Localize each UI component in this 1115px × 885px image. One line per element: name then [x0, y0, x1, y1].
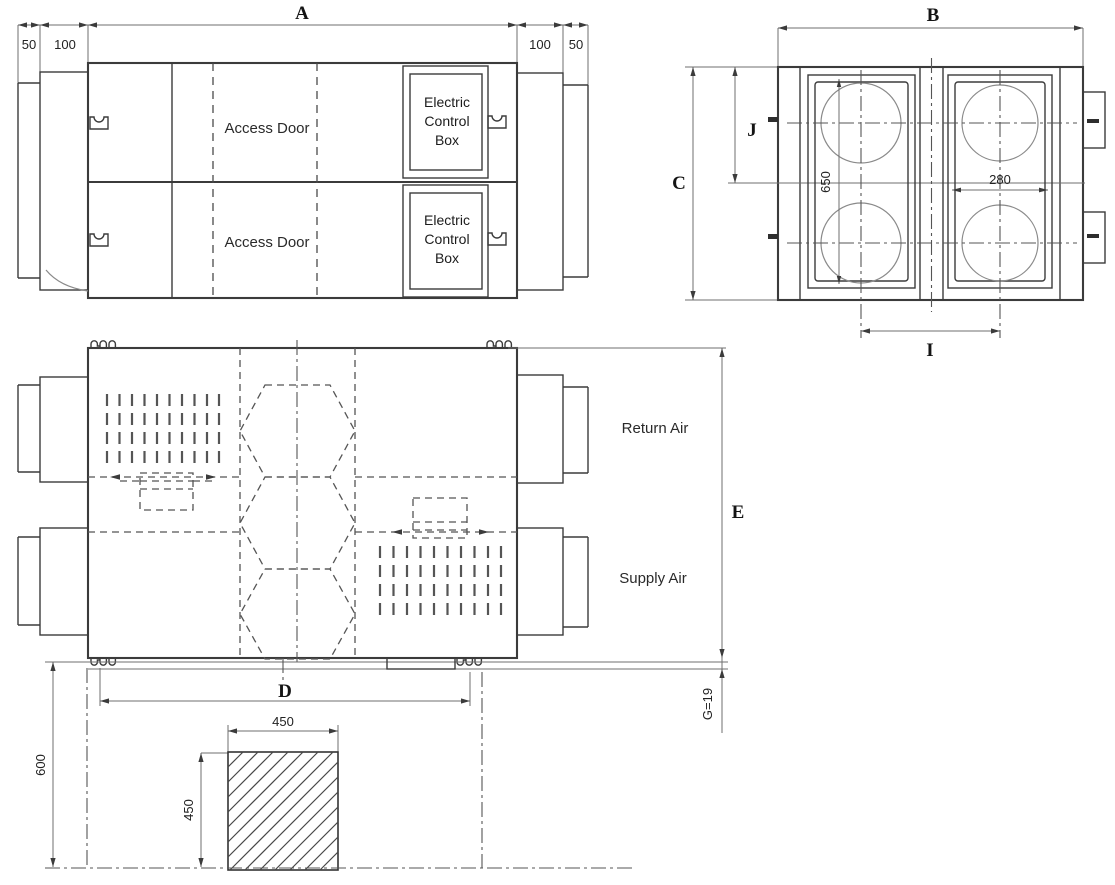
dimension-b: B	[778, 5, 1083, 67]
dim-50-left: 50	[22, 37, 36, 52]
front-view: A 50 100 100 50 Access Door	[18, 3, 588, 298]
front-right-duct-flange	[517, 73, 588, 290]
access-door-bottom-label: Access Door	[224, 234, 309, 251]
return-air-flange	[517, 375, 588, 483]
ecb-lower-line3: Box	[435, 250, 459, 266]
ecb-upper-line3: Box	[435, 132, 459, 148]
door-swing-arc	[46, 270, 88, 291]
foundation-detail: 600 450 450	[33, 658, 632, 870]
plan-view: Return Air Supply Air	[18, 340, 688, 665]
fan-grille-top-left	[107, 394, 219, 510]
corner-brackets	[91, 341, 511, 665]
ecb-upper-line2: Control	[424, 113, 469, 129]
dim-b-label: B	[927, 5, 940, 26]
dim-100-right: 100	[529, 37, 551, 52]
dim-g-label: G=19	[700, 688, 715, 720]
plan-body	[88, 348, 517, 658]
return-air-label: Return Air	[622, 420, 689, 437]
supply-air-flange	[517, 528, 588, 635]
dim-d-label: D	[278, 681, 292, 702]
dim-450-height-label: 450	[181, 799, 196, 821]
dim-100-left: 100	[54, 37, 76, 52]
end-body	[728, 58, 1085, 312]
dimension-i: I	[861, 328, 1000, 361]
end-view: B C J	[672, 5, 1105, 361]
dimension-chain-top: A 50 100 100 50	[18, 3, 588, 85]
dim-600-label: 600	[33, 754, 48, 776]
partition-lines	[88, 477, 517, 532]
dim-50-right: 50	[569, 37, 583, 52]
fan-grille-bottom-right	[380, 498, 501, 620]
dim-i-label: I	[926, 340, 933, 361]
dimension-280: 280	[952, 172, 1048, 192]
dimension-450-height: 450	[181, 753, 228, 867]
dim-j-label: J	[747, 120, 757, 141]
plan-left-flange-top	[18, 377, 88, 482]
front-left-duct-flange	[18, 72, 88, 290]
plan-left-flange-bottom	[18, 528, 88, 635]
heat-exchanger-core	[240, 340, 355, 662]
supply-air-label: Supply Air	[619, 570, 687, 587]
ecb-lower-line1: Electric	[424, 212, 470, 228]
drawing-canvas: A 50 100 100 50 Access Door	[0, 0, 1115, 885]
electric-control-box-upper: Electric Control Box	[403, 66, 488, 178]
dim-280-label: 280	[989, 172, 1011, 187]
dim-450-width-label: 450	[272, 714, 294, 729]
ecb-upper-line1: Electric	[424, 94, 470, 110]
dimension-450-width: 450	[228, 714, 338, 752]
dim-a-label: A	[295, 3, 309, 24]
dim-e-label: E	[732, 502, 745, 523]
dim-650-label: 650	[818, 171, 833, 193]
dim-c-label: C	[672, 173, 686, 194]
dimension-j: J	[732, 67, 756, 183]
base-rail-and-side-dims: E G=19 D	[45, 348, 744, 733]
dimension-650: 650	[818, 79, 841, 284]
electric-control-box-lower: Electric Control Box	[403, 185, 488, 297]
dimension-e: E G=19	[508, 348, 744, 733]
concrete-pad	[228, 752, 338, 870]
dimension-600: 600	[33, 662, 56, 867]
ecb-lower-line2: Control	[424, 231, 469, 247]
access-door-top-label: Access Door	[224, 120, 309, 137]
dimension-d: D	[100, 668, 470, 706]
hvac-dimension-drawing: A 50 100 100 50 Access Door	[0, 0, 1115, 885]
